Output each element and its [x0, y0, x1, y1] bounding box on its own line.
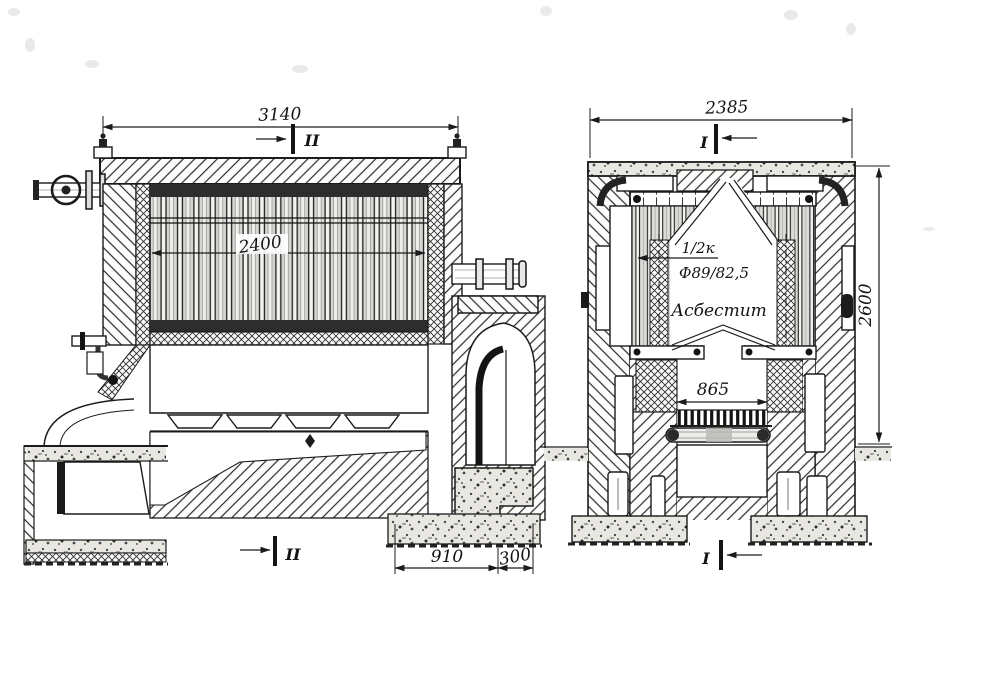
tube-top-header	[150, 184, 428, 197]
mid-foundation-ground	[386, 514, 542, 546]
ash-door	[64, 462, 149, 514]
flue-lintel-beam	[458, 296, 538, 313]
inner-niche-right	[805, 374, 825, 452]
boiler-technical-drawing: 3140 II	[0, 0, 1000, 689]
right-view-cross-section: 2385 I	[540, 97, 892, 570]
water-tube-bank	[150, 184, 428, 345]
front-wall-masonry	[103, 184, 150, 345]
cleanout-door	[841, 294, 853, 318]
note-insulation-material: Асбестит	[670, 301, 767, 321]
combustion-chamber	[150, 345, 428, 413]
tube-bottom-header	[150, 320, 428, 332]
wall-niche-left	[596, 246, 610, 330]
section-label-II-bottom: II	[285, 545, 301, 564]
rear-flue-masonry	[452, 296, 545, 523]
dim-text-910: 910	[431, 547, 464, 567]
pipe-flange	[86, 171, 92, 209]
ash-pit	[677, 445, 767, 497]
wall-lug-left	[581, 292, 589, 308]
dim-text-2385: 2385	[704, 97, 749, 119]
tube-seat-band	[150, 332, 428, 345]
outlet-nozzle	[452, 259, 526, 289]
section-label-I-bottom: I	[701, 549, 710, 568]
dim-text-3140: 3140	[258, 104, 302, 126]
section-label-I-top: I	[699, 133, 708, 152]
note-tube-count: 1/2к	[681, 239, 714, 257]
inner-niche-left	[615, 376, 633, 454]
dim-text-865: 865	[697, 380, 729, 400]
note-tube-diameter: Ф89/82,5	[679, 264, 749, 282]
grate-and-roller	[666, 410, 772, 442]
section-label-II-top: II	[304, 131, 320, 150]
foundation-and-ash-duct	[150, 432, 428, 518]
scanned-drawing-page: 3140 II	[0, 0, 1000, 689]
dim-text-2600: 2600	[856, 283, 876, 327]
nozzle-flange	[506, 259, 513, 289]
grate-teeth	[677, 410, 767, 426]
nozzle-flange	[476, 259, 483, 289]
